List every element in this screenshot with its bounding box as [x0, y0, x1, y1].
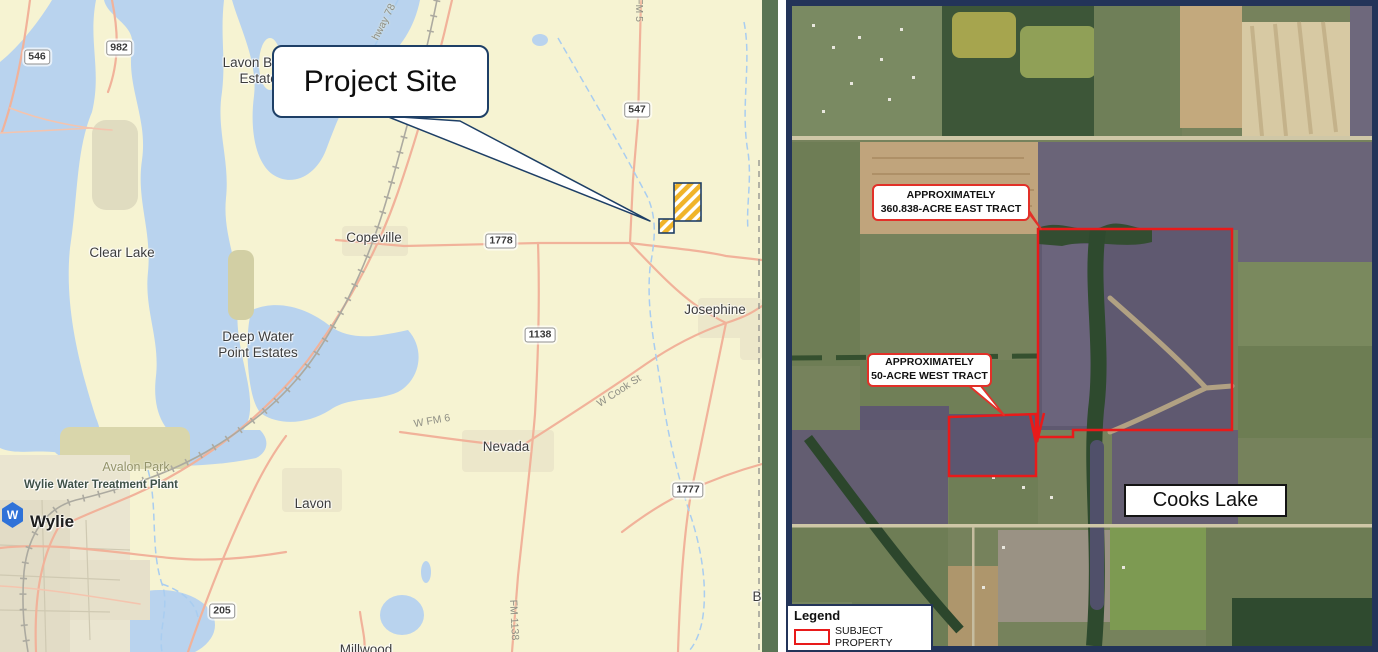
- legend-title: Legend: [794, 608, 925, 623]
- place-label: B: [752, 589, 761, 605]
- route-shield: 1138: [525, 328, 556, 343]
- vicinity-street-map: Lavon Beach EstatesClear LakeCopevilleJo…: [0, 0, 762, 652]
- place-label: Wylie: [30, 512, 74, 532]
- place-label: Copeville: [346, 230, 402, 246]
- place-label: Nevada: [483, 439, 530, 455]
- tract-callout: APPROXIMATELY 50-ACRE WEST TRACT: [867, 353, 992, 387]
- place-label: Millwood: [340, 642, 393, 652]
- road-name-label: FM 1138: [507, 599, 521, 640]
- tract-callout-line2: 50-ACRE WEST TRACT: [871, 370, 988, 384]
- place-label: Avalon Park: [102, 460, 169, 474]
- route-shield: 205: [209, 604, 235, 619]
- road-name-label: FM 5: [633, 0, 645, 22]
- location-map-figure: Lavon Beach EstatesClear LakeCopevilleJo…: [0, 0, 1378, 652]
- project-site-callout-leader: [386, 116, 650, 221]
- project-site-callout: Project Site: [272, 45, 489, 118]
- tract-callout-line2: 360.838-ACRE EAST TRACT: [881, 203, 1022, 217]
- route-shield: 1777: [672, 483, 703, 498]
- route-shield: 546: [24, 50, 50, 65]
- tract-callout-line1: APPROXIMATELY: [885, 356, 974, 370]
- place-label: Josephine: [684, 302, 746, 318]
- cooks-lake-label: Cooks Lake: [1124, 484, 1287, 517]
- map-divider-strip: [762, 0, 778, 652]
- route-shield: 982: [106, 41, 132, 56]
- legend-box: Legend SUBJECT PROPERTY: [786, 604, 933, 652]
- place-label: Clear Lake: [89, 245, 154, 261]
- aerial-imagery: [792, 6, 1372, 646]
- aerial-property-map: [786, 0, 1378, 652]
- place-label: Deep Water Point Estates: [218, 329, 298, 361]
- place-label: Lavon: [295, 496, 332, 512]
- route-shield: 547: [624, 103, 650, 118]
- legend-row: SUBJECT PROPERTY: [794, 625, 925, 649]
- subject-property-swatch-icon: [794, 629, 830, 645]
- place-label: Wylie Water Treatment Plant: [24, 479, 178, 491]
- route-shield: 1778: [485, 234, 516, 249]
- project-site-marker: [659, 183, 701, 233]
- tract-callout: APPROXIMATELY 360.838-ACRE EAST TRACT: [872, 184, 1030, 221]
- legend-item-label: SUBJECT PROPERTY: [835, 625, 925, 649]
- tract-callout-line1: APPROXIMATELY: [907, 189, 996, 203]
